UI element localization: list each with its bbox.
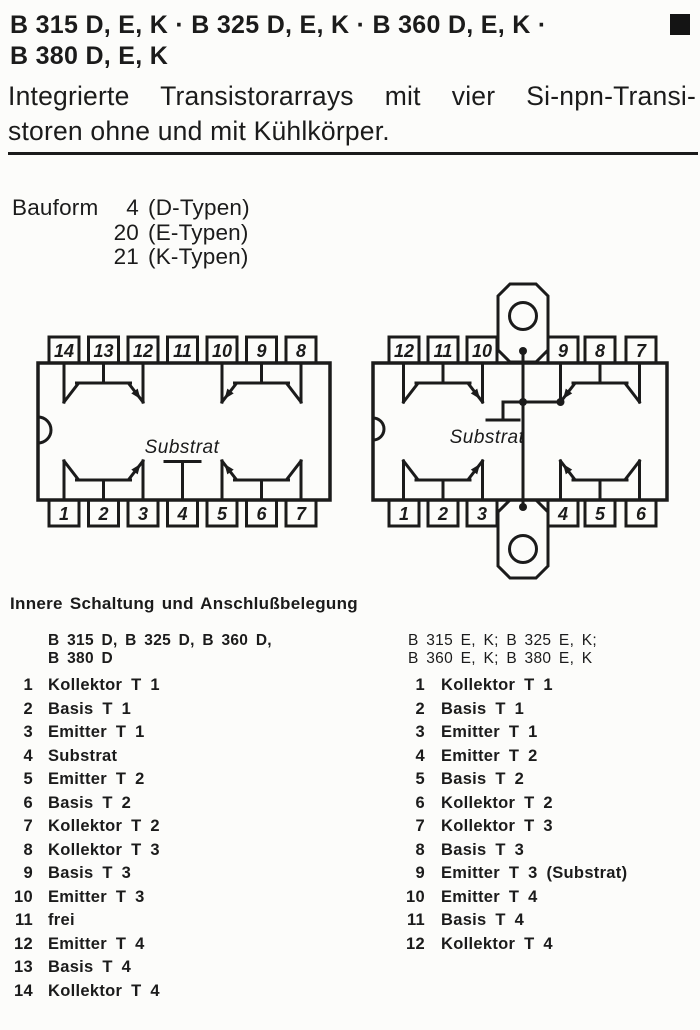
pin-number: 11	[370, 909, 425, 933]
pin-number: 10	[370, 886, 425, 910]
pin-row: 6Kollektor T 2	[370, 792, 627, 816]
junction-dot	[519, 398, 527, 406]
pin-number: 4	[370, 745, 425, 769]
pin-number: 9	[256, 341, 266, 361]
pin-number: 4	[0, 745, 33, 769]
corner-marker-square	[670, 14, 690, 35]
bauform-row: 20 (E-Typen)	[12, 221, 250, 246]
pin-number: 8	[0, 839, 33, 863]
pin-function: Emitter T 1	[48, 721, 145, 745]
dip12-tab-package-diagram: 12 11 10 9 8 7 1 2 3 4 5 6	[373, 284, 667, 578]
pin-row: 11Basis T 4	[370, 909, 627, 933]
subtitle-line-1: Integrierte Transistorarrays mit vier Si…	[8, 79, 696, 114]
pin-number: 11	[434, 341, 453, 361]
pin-number: 2	[370, 698, 425, 722]
pin-function: Kollektor T 2	[441, 792, 553, 816]
pin-row: 12Kollektor T 4	[370, 933, 627, 957]
pinout-header-line: B 315 D, B 325 D, B 360 D,	[48, 632, 272, 650]
pin-number: 3	[477, 504, 487, 524]
pin-row: 8Basis T 3	[370, 839, 627, 863]
horizontal-rule	[8, 152, 698, 155]
bauform-row: Bauform 4 (D-Typen)	[12, 196, 250, 221]
pin-row: 11frei	[0, 909, 160, 933]
pin-row: 5Basis T 2	[370, 768, 627, 792]
pin-number: 3	[138, 504, 148, 524]
pin-function: Emitter T 1	[441, 721, 538, 745]
pinout-header-line: B 315 E, K; B 325 E, K;	[408, 632, 597, 650]
pin-number: 10	[0, 886, 33, 910]
pin-list-d-types: 1Kollektor T 1 2Basis T 1 3Emitter T 1 4…	[0, 674, 160, 1003]
pin-number: 8	[370, 839, 425, 863]
pin-number: 12	[394, 341, 414, 361]
pin-number: 8	[595, 341, 605, 361]
pin-function: Kollektor T 4	[48, 980, 160, 1004]
pin-function: Basis T 2	[48, 792, 131, 816]
npn-transistor-t1	[404, 461, 483, 500]
pin-function: Emitter T 3	[48, 886, 145, 910]
pin-number: 7	[296, 504, 307, 524]
pin-list-ek-types: 1Kollektor T 1 2Basis T 1 3Emitter T 1 4…	[370, 674, 627, 956]
junction-dot	[557, 398, 565, 406]
npn-transistor-t4	[64, 363, 143, 402]
pin-number: 6	[370, 792, 425, 816]
pin-number: 12	[133, 341, 153, 361]
pin-number: 1	[399, 504, 409, 524]
pin-number: 11	[173, 341, 192, 361]
pin-function: Substrat	[48, 745, 117, 769]
pin-function: Basis T 4	[441, 909, 524, 933]
pin-row: 13Basis T 4	[0, 956, 160, 980]
pin-number: 9	[370, 862, 425, 886]
pin-number: 1	[59, 504, 69, 524]
pin-function: Basis T 1	[48, 698, 131, 722]
pin-function: Emitter T 2	[441, 745, 538, 769]
pin-number: 4	[176, 504, 187, 524]
pin-number: 10	[212, 341, 232, 361]
pin-function: Emitter T 4	[441, 886, 538, 910]
pin-number: 12	[0, 933, 33, 957]
pin-row: 8Kollektor T 3	[0, 839, 160, 863]
pin-number: 5	[595, 504, 606, 524]
pin-function: Basis T 3	[48, 862, 131, 886]
pin-number: 13	[0, 956, 33, 980]
pin-row: 2Basis T 1	[0, 698, 160, 722]
substrate-label: Substrat	[450, 427, 525, 448]
pin-function: Emitter T 4	[48, 933, 145, 957]
pin-row: 4Substrat	[0, 745, 160, 769]
pin-function: Basis T 3	[441, 839, 524, 863]
bauform-number: 21	[108, 245, 139, 270]
pin-row: 9Emitter T 3 (Substrat)	[370, 862, 627, 886]
pin-row: 10Emitter T 4	[370, 886, 627, 910]
pin-function: frei	[48, 909, 75, 933]
pin-number: 2	[437, 504, 448, 524]
dip14-package-diagram: 14 13 12 11 10 9 8 1 2 3 4 5 6 7	[38, 337, 330, 526]
npn-transistor-t3	[561, 363, 640, 402]
pin-row: 3Emitter T 1	[370, 721, 627, 745]
page-title: B 315 D, E, K · B 325 D, E, K · B 360 D,…	[10, 10, 640, 72]
bauform-type: (E-Typen)	[148, 221, 249, 246]
pin-number: 13	[93, 341, 113, 361]
npn-transistor-t2	[561, 461, 640, 500]
pin-row: 3Emitter T 1	[0, 721, 160, 745]
bauform-number: 20	[108, 221, 139, 246]
pin-function: Kollektor T 3	[441, 815, 553, 839]
bauform-type: (D-Typen)	[148, 196, 250, 221]
substrate-label: Substrat	[145, 437, 220, 458]
pin-number: 14	[54, 341, 74, 361]
pin-number: 1	[0, 674, 33, 698]
pin-number: 5	[217, 504, 228, 524]
pin-number: 1	[370, 674, 425, 698]
pin-row: 1Kollektor T 1	[370, 674, 627, 698]
pin-number: 10	[472, 341, 492, 361]
pin-function: Kollektor T 4	[441, 933, 553, 957]
pin-function: Emitter T 2	[48, 768, 145, 792]
pin-row: 12Emitter T 4	[0, 933, 160, 957]
pin-number: 9	[0, 862, 33, 886]
npn-transistor-t4	[404, 363, 483, 402]
bauform-row: 21 (K-Typen)	[12, 245, 250, 270]
pin-number: 12	[370, 933, 425, 957]
mounting-tab-bottom	[498, 500, 548, 578]
npn-transistor-t1	[64, 461, 143, 500]
pin-number: 5	[0, 768, 33, 792]
pin-function: Basis T 4	[48, 956, 131, 980]
junction-dot	[519, 503, 527, 511]
pin-number: 4	[557, 504, 568, 524]
pin-row: 9Basis T 3	[0, 862, 160, 886]
pinout-header-ek-types: B 315 E, K; B 325 E, K; B 360 E, K; B 38…	[408, 632, 597, 668]
pin-number: 3	[0, 721, 33, 745]
npn-transistor-t3	[222, 363, 301, 402]
pin-row: 6Basis T 2	[0, 792, 160, 816]
pin-row: 2Basis T 1	[370, 698, 627, 722]
pin-function: Basis T 2	[441, 768, 524, 792]
pin-row: 4Emitter T 2	[370, 745, 627, 769]
page-subtitle: Integrierte Transistorarrays mit vier Si…	[8, 79, 696, 149]
pin-number: 6	[0, 792, 33, 816]
pin-row: 5Emitter T 2	[0, 768, 160, 792]
npn-transistor-t2	[222, 461, 301, 500]
pinout-header-line: B 360 E, K; B 380 E, K	[408, 650, 597, 668]
pin-number: 2	[97, 504, 108, 524]
bauform-number: 4	[108, 196, 139, 221]
pin-number: 6	[636, 504, 647, 524]
pin-number: 5	[370, 768, 425, 792]
pinout-header-d-types: B 315 D, B 325 D, B 360 D, B 380 D	[48, 632, 272, 668]
title-line-1: B 315 D, E, K · B 325 D, E, K · B 360 D,…	[10, 10, 640, 41]
pin-number: 7	[370, 815, 425, 839]
pin-number: 11	[0, 909, 33, 933]
pin-function: Kollektor T 2	[48, 815, 160, 839]
pin-number: 7	[636, 341, 647, 361]
subtitle-line-2: storen ohne und mit Kühlkörper.	[8, 114, 696, 149]
package-diagrams: 14 13 12 11 10 9 8 1 2 3 4 5 6 7	[0, 270, 700, 600]
pin-number: 14	[0, 980, 33, 1004]
pin-row: 10Emitter T 3	[0, 886, 160, 910]
pin-function: Basis T 1	[441, 698, 524, 722]
pin-function: Kollektor T 1	[48, 674, 160, 698]
pin-row: 7Kollektor T 2	[0, 815, 160, 839]
pin-number: 8	[296, 341, 306, 361]
pin-function: Kollektor T 3	[48, 839, 160, 863]
bauform-type: (K-Typen)	[148, 245, 249, 270]
pin-function: Emitter T 3 (Substrat)	[441, 862, 627, 886]
orientation-notch	[38, 417, 51, 443]
bauform-table: Bauform 4 (D-Typen) 20 (E-Typen) 21 (K-T…	[12, 196, 250, 270]
pin-number: 9	[558, 341, 568, 361]
pin-number: 6	[256, 504, 267, 524]
pin-row: 14Kollektor T 4	[0, 980, 160, 1004]
pinout-header-line: B 380 D	[48, 650, 272, 668]
pinout-heading: Innere Schaltung und Anschlußbelegung	[10, 594, 358, 614]
pin-number: 3	[370, 721, 425, 745]
datasheet-page: B 315 D, E, K · B 325 D, E, K · B 360 D,…	[0, 0, 700, 1030]
pin-number: 2	[0, 698, 33, 722]
junction-dot	[519, 347, 527, 355]
title-line-2: B 380 D, E, K	[10, 41, 640, 72]
pin-row: 1Kollektor T 1	[0, 674, 160, 698]
pin-function: Kollektor T 1	[441, 674, 553, 698]
pin-row: 7Kollektor T 3	[370, 815, 627, 839]
pin-number: 7	[0, 815, 33, 839]
bauform-label: Bauform	[12, 196, 108, 221]
